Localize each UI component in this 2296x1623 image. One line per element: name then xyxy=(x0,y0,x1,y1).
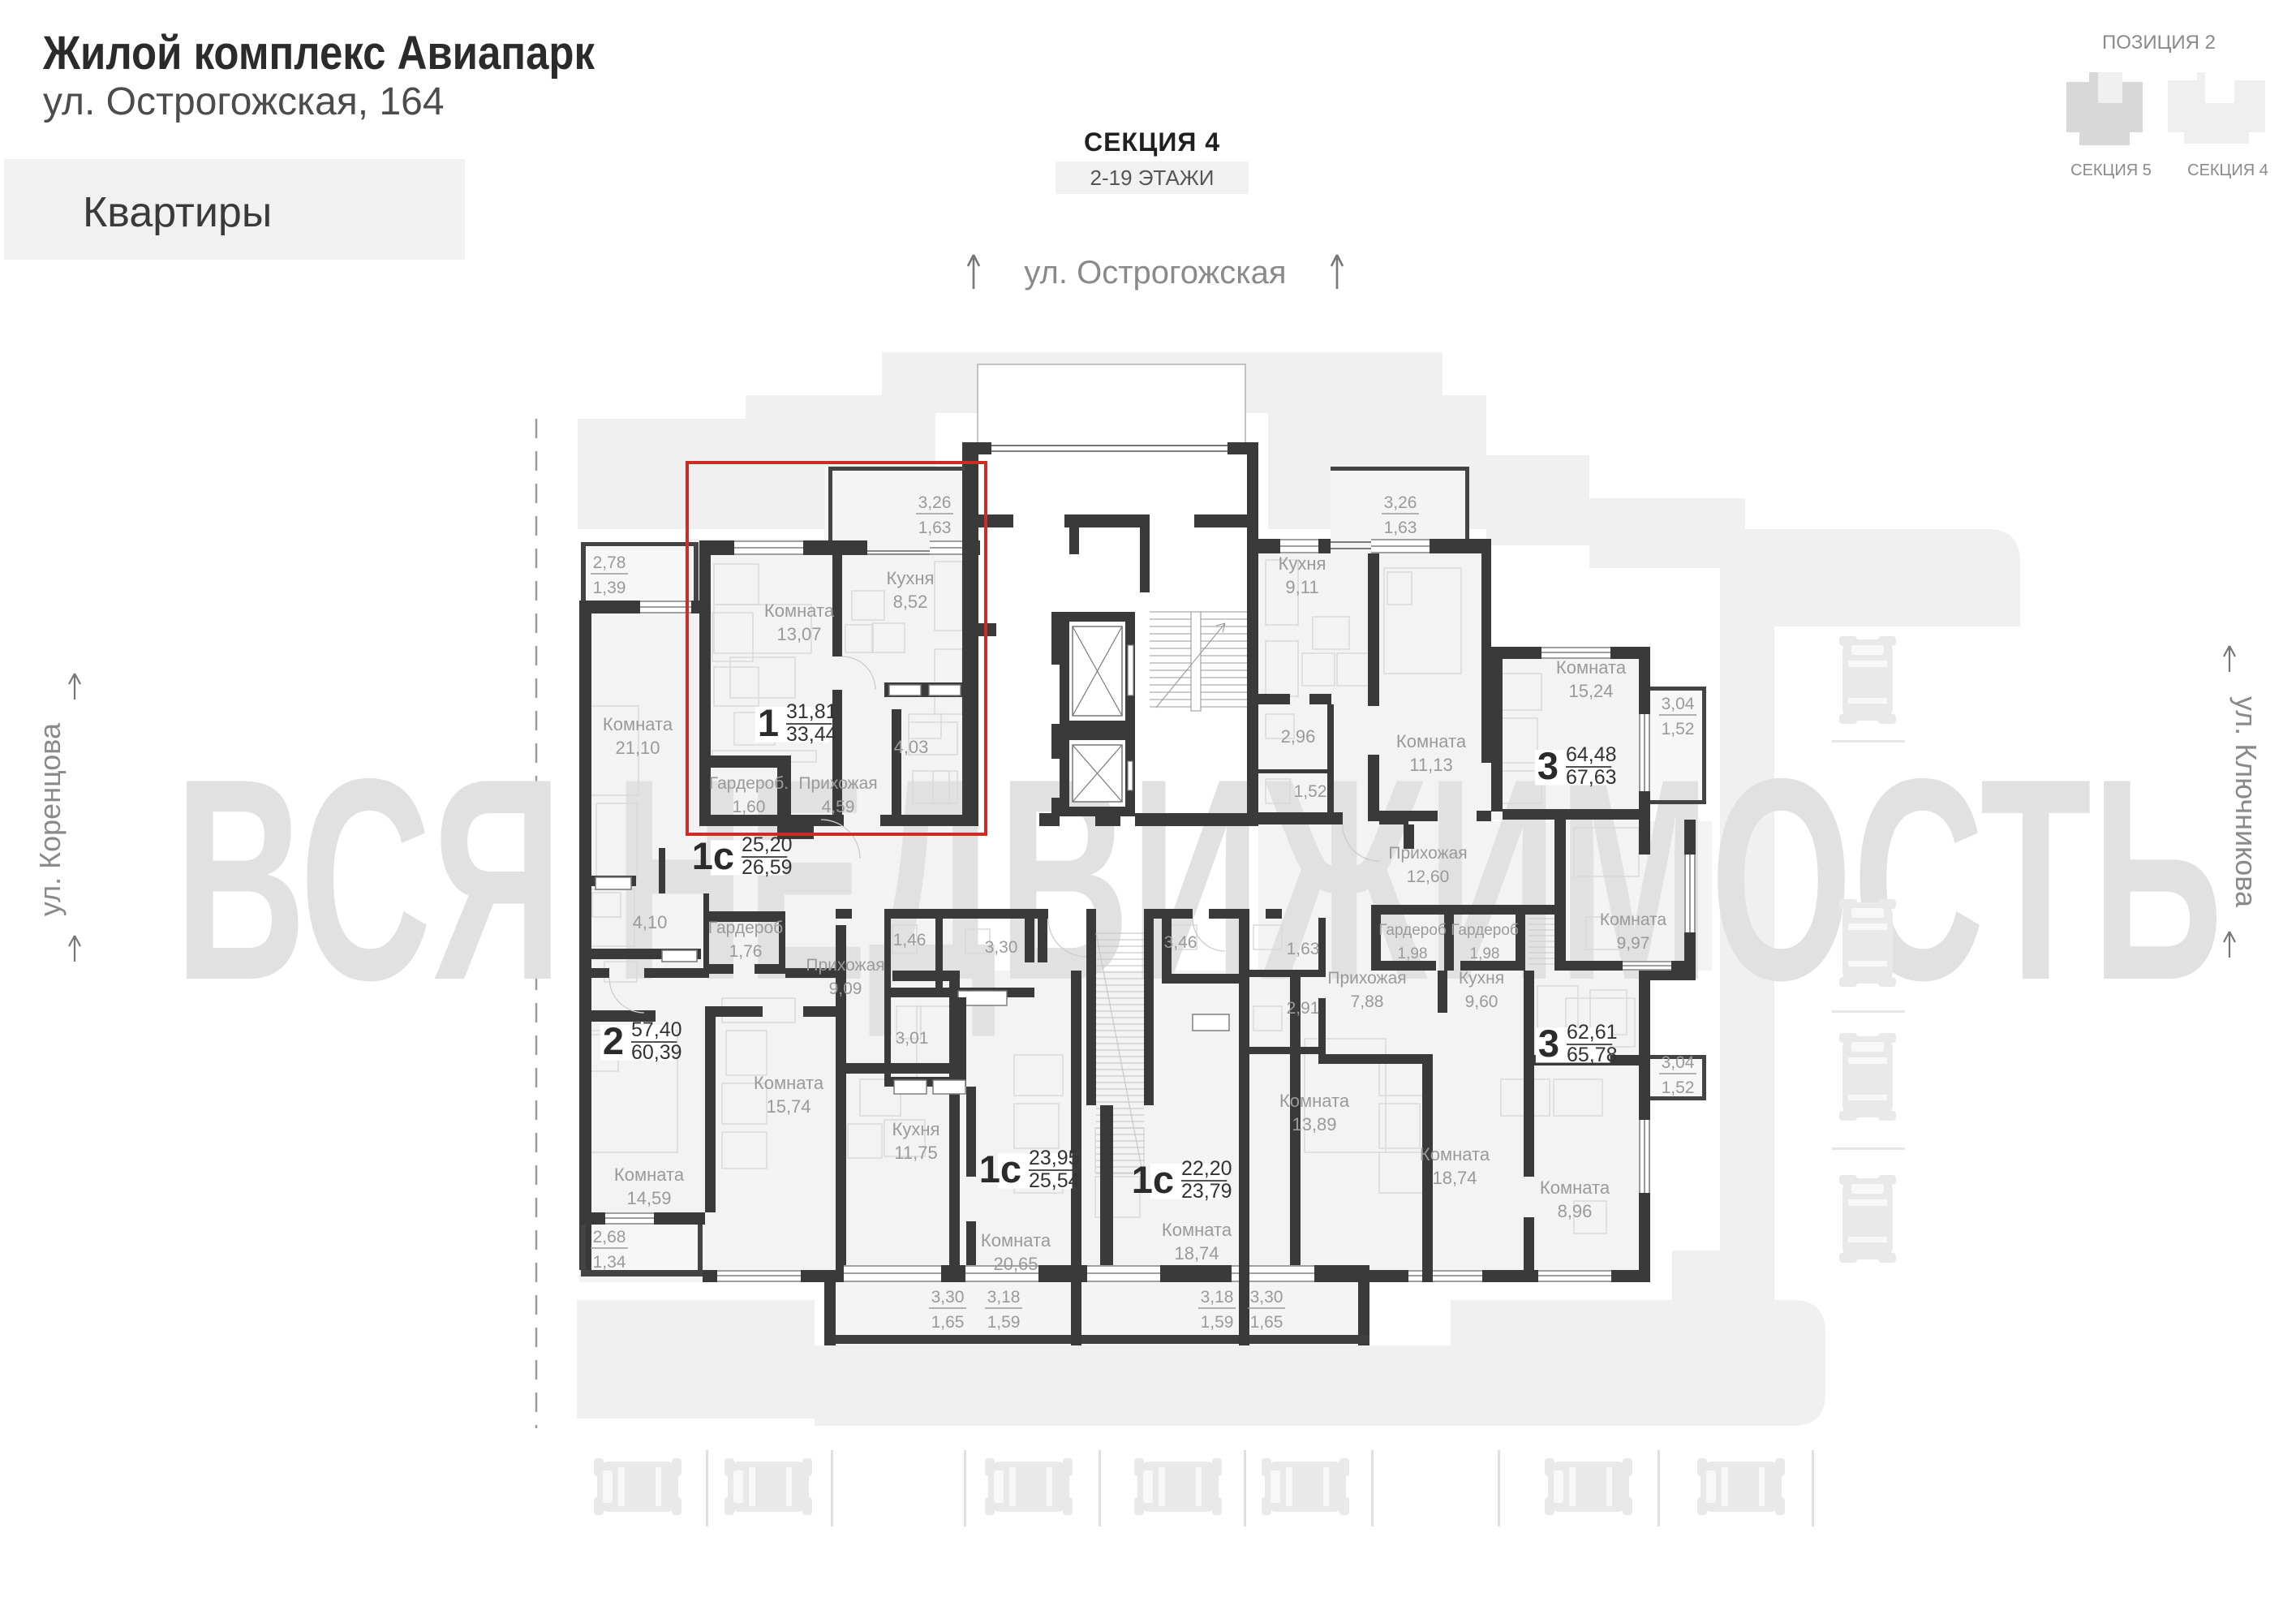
svg-text:20,65: 20,65 xyxy=(993,1254,1038,1274)
svg-text:Кухня: Кухня xyxy=(892,1119,940,1139)
svg-text:25,20: 25,20 xyxy=(742,833,793,856)
svg-text:Квартиры: Квартиры xyxy=(83,189,272,236)
svg-text:1,76: 1,76 xyxy=(729,942,763,961)
svg-text:23,79: 23,79 xyxy=(1181,1180,1232,1203)
svg-text:2: 2 xyxy=(603,1019,624,1062)
svg-text:Прихожая: Прихожая xyxy=(798,774,877,793)
svg-text:22,20: 22,20 xyxy=(1181,1157,1232,1180)
svg-text:СЕКЦИЯ 4: СЕКЦИЯ 4 xyxy=(1084,127,1220,157)
svg-text:3,46: 3,46 xyxy=(1164,933,1197,952)
svg-text:1,39: 1,39 xyxy=(593,579,626,597)
svg-text:Кухня: Кухня xyxy=(887,568,935,588)
svg-text:9,97: 9,97 xyxy=(1617,934,1650,953)
svg-text:1с: 1с xyxy=(979,1147,1021,1190)
svg-text:8,96: 8,96 xyxy=(1558,1201,1593,1221)
svg-text:13,89: 13,89 xyxy=(1292,1114,1336,1134)
svg-text:8,52: 8,52 xyxy=(893,592,928,612)
svg-text:1,98: 1,98 xyxy=(1470,945,1500,962)
svg-text:21,10: 21,10 xyxy=(615,738,660,758)
svg-text:1,34: 1,34 xyxy=(593,1253,626,1272)
svg-text:ПОЗИЦИЯ 2: ПОЗИЦИЯ 2 xyxy=(2102,32,2216,54)
svg-text:СЕКЦИЯ 4: СЕКЦИЯ 4 xyxy=(2187,161,2268,179)
svg-text:1с: 1с xyxy=(692,834,734,877)
svg-text:62,61: 62,61 xyxy=(1567,1021,1618,1044)
svg-text:ул. Острогожская: ул. Острогожская xyxy=(1024,255,1286,291)
svg-text:1,63: 1,63 xyxy=(1384,519,1417,537)
svg-text:Комната: Комната xyxy=(1420,1144,1490,1165)
svg-text:Кухня: Кухня xyxy=(1459,969,1504,988)
svg-text:СЕКЦИЯ 5: СЕКЦИЯ 5 xyxy=(2070,161,2152,179)
svg-text:3,04: 3,04 xyxy=(1662,695,1695,713)
svg-text:1,46: 1,46 xyxy=(893,931,927,949)
svg-text:Комната: Комната xyxy=(614,1165,685,1185)
svg-text:Комната: Комната xyxy=(754,1073,824,1093)
svg-text:1,60: 1,60 xyxy=(733,798,766,816)
svg-text:Комната: Комната xyxy=(1540,1177,1610,1198)
svg-text:14,59: 14,59 xyxy=(626,1188,671,1208)
svg-text:64,48: 64,48 xyxy=(1566,743,1617,766)
svg-text:ВСЯ НЕДВИЖИМОСТЬ: ВСЯ НЕДВИЖИМОСТЬ xyxy=(174,720,2223,1040)
svg-text:Кухня: Кухня xyxy=(1279,553,1326,574)
svg-text:3,04: 3,04 xyxy=(1662,1053,1695,1072)
svg-text:9,11: 9,11 xyxy=(1285,577,1318,597)
svg-text:Комната: Комната xyxy=(1279,1091,1350,1111)
svg-text:1: 1 xyxy=(758,701,779,744)
svg-text:33,44: 33,44 xyxy=(786,723,837,746)
svg-text:2,91: 2,91 xyxy=(1287,999,1320,1018)
svg-text:Гардероб: Гардероб xyxy=(1451,922,1519,939)
svg-text:23,95: 23,95 xyxy=(1029,1147,1080,1169)
svg-text:11,75: 11,75 xyxy=(894,1143,937,1163)
svg-text:Гардероб: Гардероб xyxy=(708,919,783,937)
svg-text:Комната: Комната xyxy=(764,601,835,621)
svg-text:1,63: 1,63 xyxy=(1287,940,1320,958)
svg-text:4,10: 4,10 xyxy=(633,912,668,932)
svg-text:1,65: 1,65 xyxy=(931,1313,965,1332)
svg-text:3: 3 xyxy=(1537,744,1559,787)
svg-text:4,59: 4,59 xyxy=(822,798,855,816)
svg-text:12,60: 12,60 xyxy=(1407,867,1450,886)
svg-text:2,68: 2,68 xyxy=(593,1228,626,1246)
svg-text:15,24: 15,24 xyxy=(1568,681,1613,701)
svg-text:15,74: 15,74 xyxy=(766,1096,810,1117)
svg-text:Прихожая: Прихожая xyxy=(1388,844,1467,863)
svg-text:60,39: 60,39 xyxy=(631,1041,682,1064)
svg-text:3,01: 3,01 xyxy=(896,1029,929,1048)
svg-text:67,63: 67,63 xyxy=(1566,766,1617,789)
svg-text:13,07: 13,07 xyxy=(776,624,821,644)
svg-text:3,26: 3,26 xyxy=(1384,493,1417,512)
svg-text:1,52: 1,52 xyxy=(1294,782,1327,801)
svg-text:Прихожая: Прихожая xyxy=(806,956,884,975)
svg-text:Комната: Комната xyxy=(1600,911,1667,929)
svg-text:2,96: 2,96 xyxy=(1281,726,1316,747)
svg-text:Прихожая: Прихожая xyxy=(1327,969,1406,988)
svg-text:2-19 ЭТАЖИ: 2-19 ЭТАЖИ xyxy=(1090,166,1214,190)
svg-text:Комната: Комната xyxy=(1556,657,1627,678)
svg-text:1,98: 1,98 xyxy=(1398,945,1428,962)
svg-text:Жилой комплекс Авиапарк: Жилой комплекс Авиапарк xyxy=(42,27,595,80)
svg-text:1,59: 1,59 xyxy=(1201,1313,1234,1332)
svg-text:25,54: 25,54 xyxy=(1029,1169,1080,1192)
svg-text:2,78: 2,78 xyxy=(593,553,626,572)
svg-text:7,88: 7,88 xyxy=(1351,992,1384,1011)
svg-text:65,78: 65,78 xyxy=(1567,1044,1618,1066)
svg-text:9,09: 9,09 xyxy=(829,979,862,998)
svg-text:31,81: 31,81 xyxy=(786,700,837,723)
svg-text:3,26: 3,26 xyxy=(918,493,952,512)
svg-text:Комната: Комната xyxy=(981,1230,1051,1251)
svg-text:3,30: 3,30 xyxy=(931,1288,965,1307)
svg-text:18,74: 18,74 xyxy=(1174,1243,1219,1264)
svg-text:1,52: 1,52 xyxy=(1662,720,1695,738)
svg-text:1,52: 1,52 xyxy=(1662,1078,1695,1097)
svg-text:Гардероб: Гардероб xyxy=(1378,922,1447,939)
svg-text:1,59: 1,59 xyxy=(987,1313,1021,1332)
svg-text:Гардероб.: Гардероб. xyxy=(709,774,789,793)
svg-text:Комната: Комната xyxy=(603,714,673,734)
svg-text:Комната: Комната xyxy=(1162,1220,1232,1240)
svg-text:1с: 1с xyxy=(1132,1158,1174,1201)
svg-text:3,18: 3,18 xyxy=(987,1288,1021,1307)
svg-text:ул. Коренцова: ул. Коренцова xyxy=(33,722,67,916)
svg-text:3,30: 3,30 xyxy=(985,938,1018,957)
svg-text:3: 3 xyxy=(1538,1022,1559,1065)
svg-text:3,18: 3,18 xyxy=(1201,1288,1234,1307)
svg-text:9,60: 9,60 xyxy=(1465,992,1498,1011)
svg-text:4,03: 4,03 xyxy=(894,737,929,757)
svg-text:ул. Острогожская, 164: ул. Острогожская, 164 xyxy=(43,80,445,123)
svg-text:ул. Ключникова: ул. Ключникова xyxy=(2229,696,2263,908)
svg-text:1,65: 1,65 xyxy=(1250,1313,1283,1332)
svg-text:57,40: 57,40 xyxy=(631,1018,682,1041)
svg-text:3,30: 3,30 xyxy=(1250,1288,1283,1307)
svg-text:26,59: 26,59 xyxy=(742,856,793,879)
svg-text:1,63: 1,63 xyxy=(918,519,952,537)
svg-text:Комната: Комната xyxy=(1396,731,1467,751)
svg-text:18,74: 18,74 xyxy=(1432,1168,1477,1188)
svg-text:11,13: 11,13 xyxy=(1409,755,1452,775)
